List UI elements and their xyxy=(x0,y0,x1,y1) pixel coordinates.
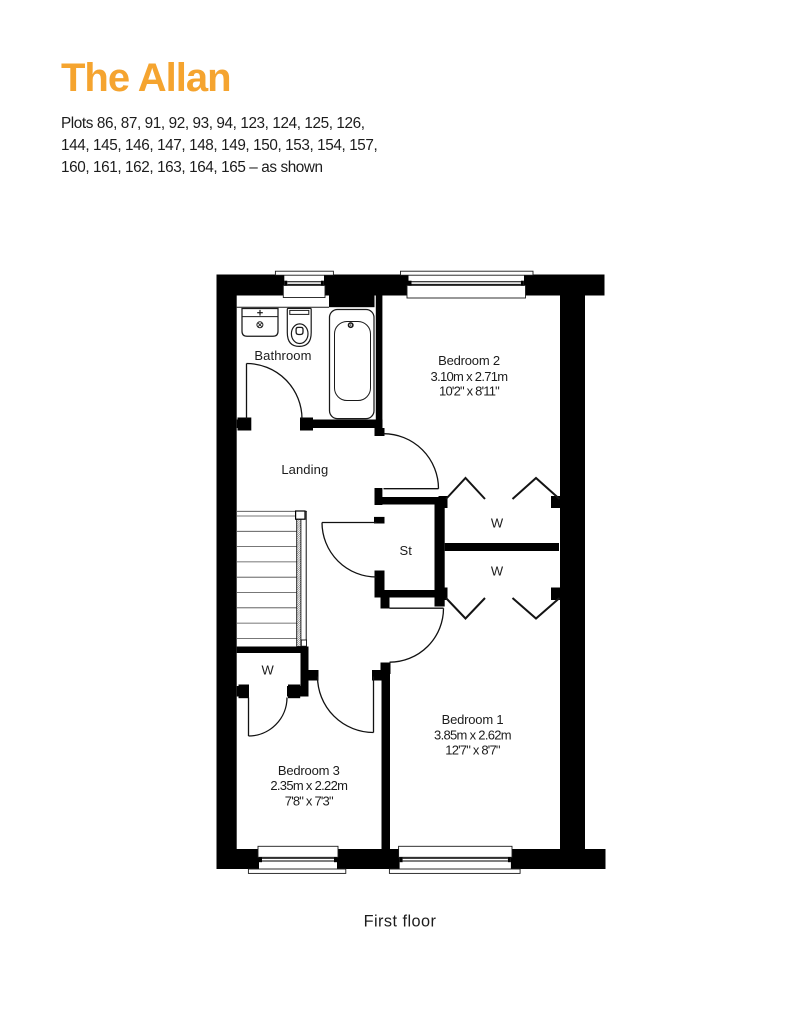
svg-text:Bedroom 2: Bedroom 2 xyxy=(438,353,500,368)
svg-text:The Allan: The Allan xyxy=(61,56,231,100)
svg-text:3.85m x 2.62m: 3.85m x 2.62m xyxy=(434,727,511,742)
svg-text:2.35m x 2.22m: 2.35m x 2.22m xyxy=(270,778,347,793)
svg-text:St: St xyxy=(399,543,412,558)
svg-text:W: W xyxy=(491,563,504,578)
svg-text:144, 145, 146, 147, 148, 149,: 144, 145, 146, 147, 148, 149, 150, 153, … xyxy=(61,137,377,154)
svg-text:First floor: First floor xyxy=(364,913,437,931)
svg-text:Bedroom 1: Bedroom 1 xyxy=(442,712,504,727)
svg-text:Landing: Landing xyxy=(281,462,328,477)
svg-text:160, 161, 162, 163, 164, 165 –: 160, 161, 162, 163, 164, 165 – as shown xyxy=(61,159,323,176)
svg-text:Plots 86, 87, 91, 92, 93, 94,: Plots 86, 87, 91, 92, 93, 94, 123, 124, … xyxy=(61,115,365,132)
svg-text:Bathroom: Bathroom xyxy=(254,348,311,363)
svg-text:10'2" x 8'11": 10'2" x 8'11" xyxy=(439,384,500,399)
svg-text:3.10m x 2.71m: 3.10m x 2.71m xyxy=(431,369,508,384)
svg-text:Bedroom 3: Bedroom 3 xyxy=(278,763,340,778)
svg-text:W: W xyxy=(262,663,275,678)
svg-text:12'7" x 8'7": 12'7" x 8'7" xyxy=(445,743,501,758)
svg-text:7'8" x 7'3": 7'8" x 7'3" xyxy=(285,793,334,808)
svg-text:W: W xyxy=(491,516,504,531)
